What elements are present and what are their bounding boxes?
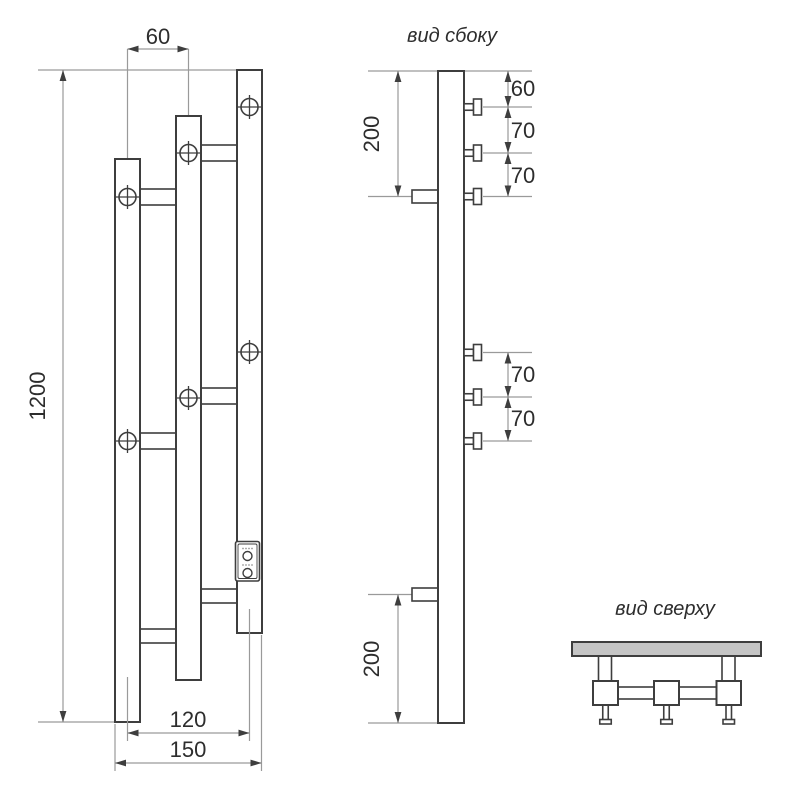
front-crossbar xyxy=(201,388,237,404)
dim-wall-top-label: 200 xyxy=(359,116,384,153)
front-crossbar xyxy=(140,189,176,205)
front-view: 60 1200 120 150 xyxy=(25,24,262,771)
control-button-icon xyxy=(243,569,252,578)
front-crossbar xyxy=(140,629,176,643)
pin xyxy=(661,705,673,724)
side-pin xyxy=(464,99,482,115)
dim-p2-label: 70 xyxy=(511,118,535,143)
side-post xyxy=(438,71,464,723)
wall-bracket-top xyxy=(412,190,438,203)
dim-spacing-label: 60 xyxy=(146,24,170,49)
side-view: вид сбоку xyxy=(359,25,535,723)
top-view: вид сверху xyxy=(572,598,761,724)
technical-drawing-canvas: 60 1200 120 150 вид сбоку xyxy=(0,0,800,800)
pin xyxy=(723,705,735,724)
dim-width-label: 150 xyxy=(170,737,207,762)
post-section xyxy=(593,681,618,705)
dim-p4-label: 70 xyxy=(511,362,535,387)
post-section xyxy=(717,681,742,705)
side-view-title: вид сбоку xyxy=(407,25,498,47)
side-pin xyxy=(464,345,482,361)
dim-p1-label: 60 xyxy=(511,76,535,101)
dim-p3-label: 70 xyxy=(511,163,535,188)
rail-section xyxy=(618,687,654,699)
dim-wall-bottom-label: 200 xyxy=(359,641,384,678)
top-view-title: вид сверху xyxy=(615,598,716,620)
wall-section xyxy=(572,642,761,656)
rail-section xyxy=(679,687,717,699)
dim-p5-label: 70 xyxy=(511,406,535,431)
side-pin xyxy=(464,189,482,205)
front-crossbar xyxy=(201,145,237,161)
side-pin xyxy=(464,389,482,405)
post-section xyxy=(654,681,679,705)
dim-centers-label: 120 xyxy=(170,707,207,732)
wall-bracket-bottom xyxy=(412,588,438,601)
pin xyxy=(600,705,612,724)
front-crossbar xyxy=(201,589,237,603)
front-crossbar xyxy=(140,433,176,449)
dim-height-label: 1200 xyxy=(25,372,50,421)
side-pin xyxy=(464,145,482,161)
side-pin xyxy=(464,433,482,449)
control-button-icon xyxy=(243,552,252,561)
control-panel xyxy=(236,542,260,582)
